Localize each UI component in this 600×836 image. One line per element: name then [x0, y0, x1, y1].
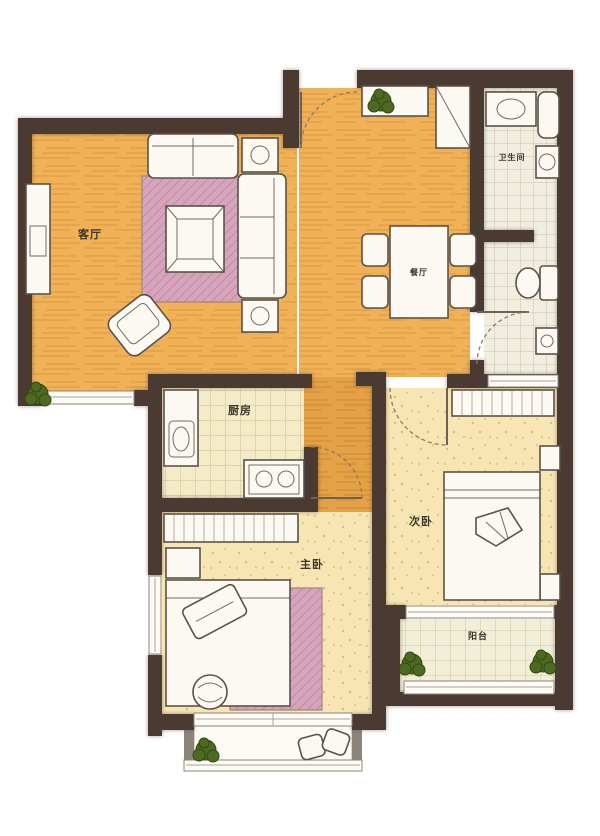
wall-segment: [470, 230, 534, 242]
wall-segment: [148, 714, 194, 730]
wall-segment: [148, 374, 312, 388]
wall-segment: [283, 70, 299, 148]
wall-segment: [356, 372, 386, 386]
master-bedroom-label: 主卧: [300, 557, 324, 571]
wall-segment: [372, 386, 386, 730]
tv-cabinet: [26, 184, 50, 294]
sofa-three-seat: [238, 174, 286, 298]
balcony-label: 阳台: [468, 630, 488, 642]
wardrobe: [452, 390, 554, 416]
nightstand: [540, 574, 560, 600]
wall-segment: [148, 498, 308, 512]
bathroom-label: 卫生间: [499, 152, 526, 162]
side-table: [242, 138, 278, 172]
wall-segment: [352, 714, 386, 730]
dining-chair: [362, 276, 388, 308]
wall-segment: [386, 605, 406, 619]
floor-plan: 客厅 餐厅 厨房 卫生间 主卧 次卧 阳台: [0, 0, 600, 836]
living-room-label: 客厅: [77, 227, 102, 241]
wall-segment: [148, 388, 162, 575]
stool: [193, 675, 227, 709]
coffee-table: [166, 206, 224, 272]
wall-segment: [554, 605, 573, 619]
dining-room-label: 餐厅: [409, 267, 428, 277]
toilet-tank: [540, 266, 558, 300]
nightstand: [166, 548, 200, 578]
kitchen-counter: [244, 460, 304, 498]
living-room-floor-edge: [32, 377, 148, 391]
floor-plan-drawing: 客厅 餐厅 厨房 卫生间 主卧 次卧 阳台: [0, 0, 600, 836]
water-heater: [538, 92, 559, 138]
dining-chair: [450, 234, 476, 266]
dining-chair: [450, 276, 476, 308]
side-table: [242, 300, 278, 332]
mop-basin: [536, 328, 558, 354]
nightstand: [540, 446, 560, 470]
kitchen-label: 厨房: [228, 403, 252, 417]
wardrobe: [164, 514, 298, 542]
wall-segment: [18, 118, 290, 134]
second-bedroom-label: 次卧: [409, 514, 433, 528]
toilet-bowl: [516, 268, 540, 298]
vanity-counter: [486, 92, 536, 126]
wall-segment: [477, 70, 573, 88]
dining-chair: [362, 234, 388, 266]
